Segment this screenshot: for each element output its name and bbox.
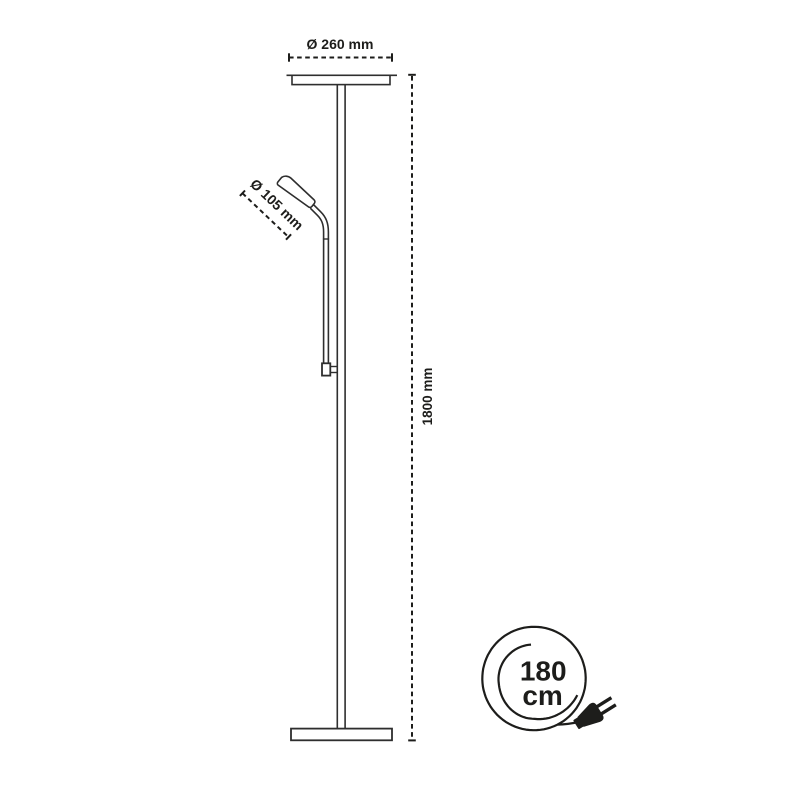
svg-text:cm: cm (522, 680, 562, 711)
svg-text:Ø 260 mm: Ø 260 mm (307, 36, 374, 52)
svg-text:1800 mm: 1800 mm (420, 368, 435, 426)
